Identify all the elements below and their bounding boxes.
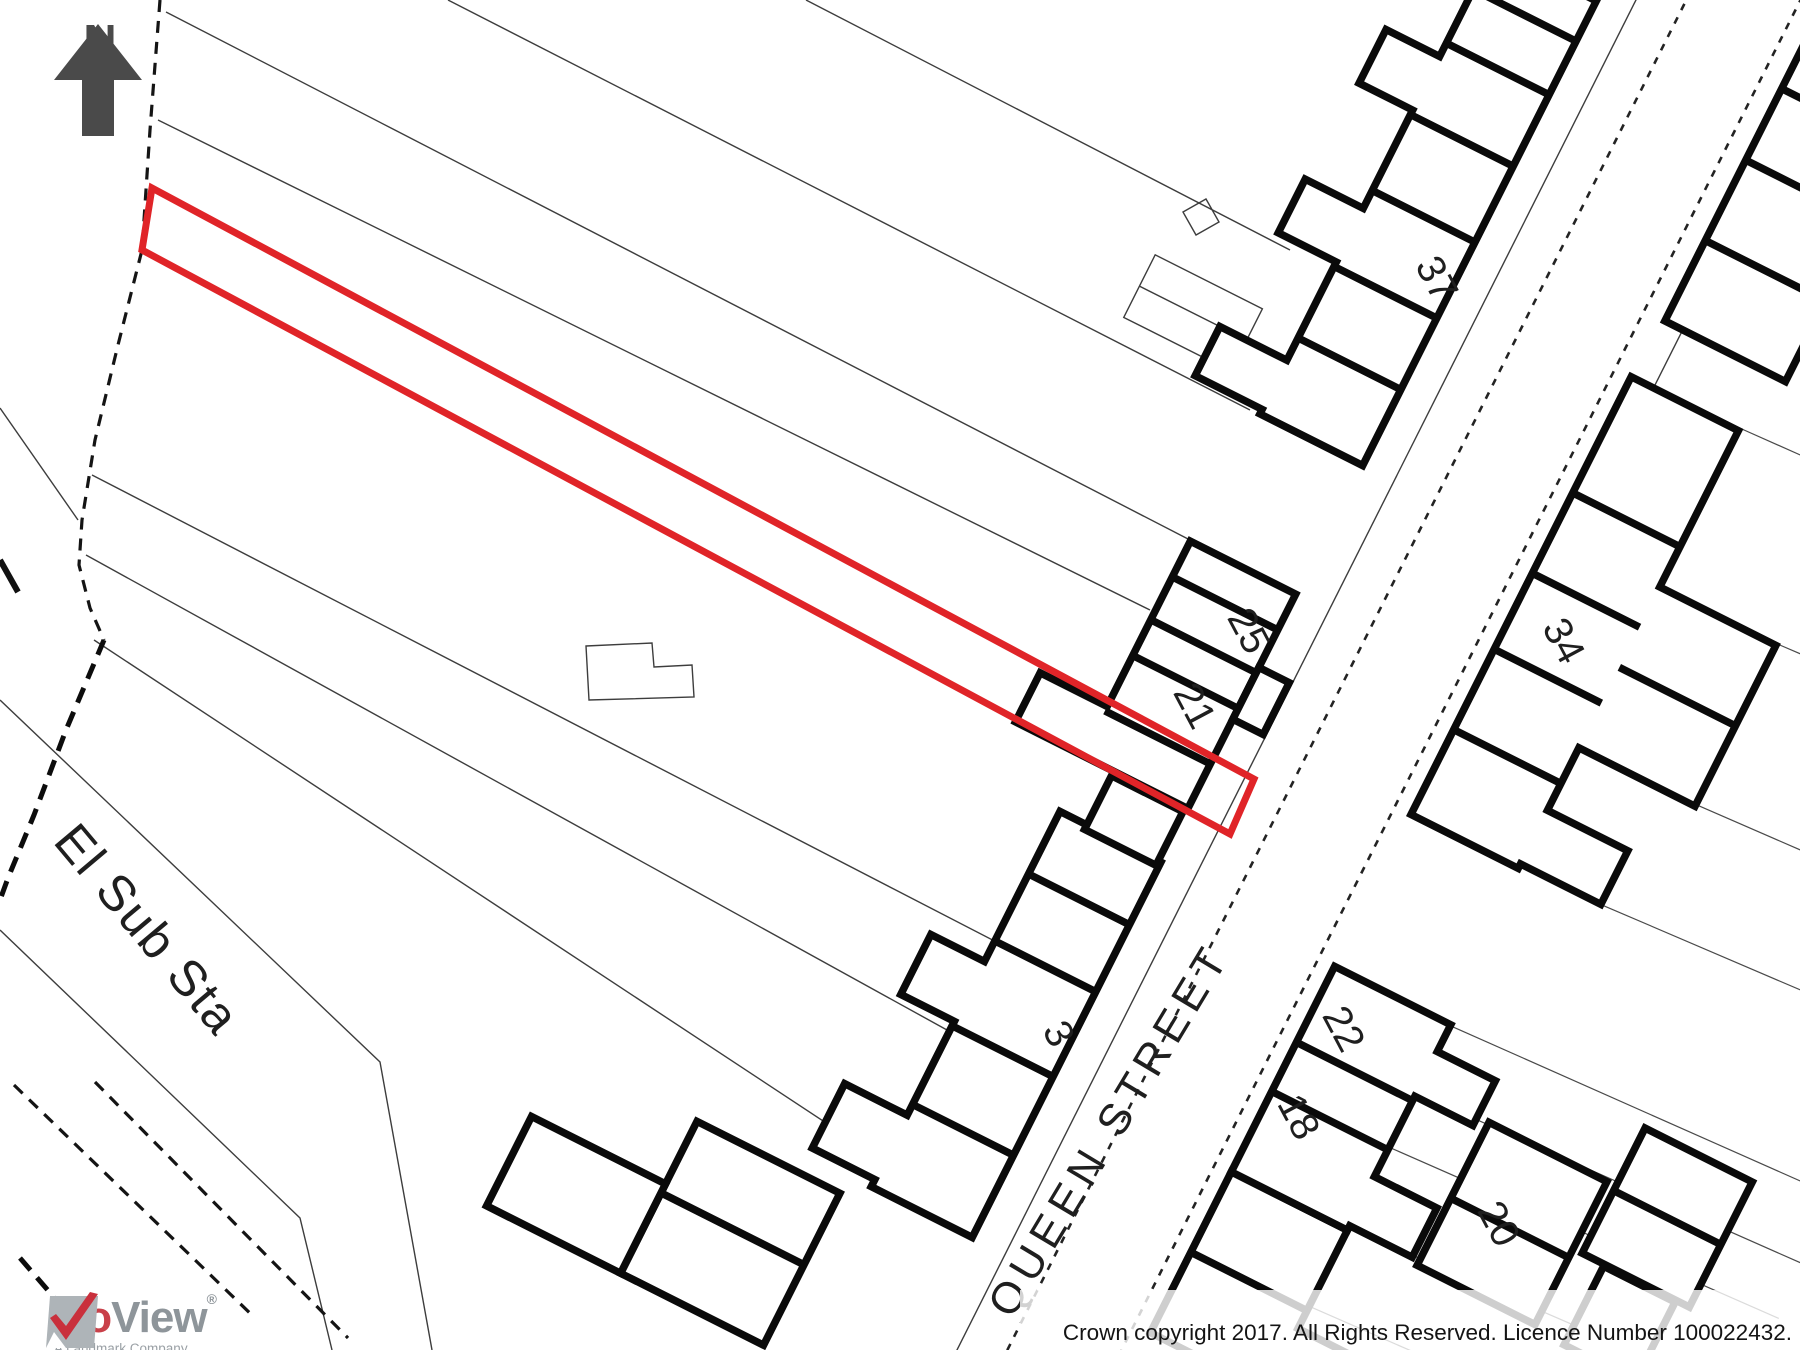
copyright-text: Crown copyright 2017. All Rights Reserve…	[1063, 1320, 1792, 1346]
el-sub-sta-label: El Sub Sta	[44, 813, 252, 1045]
goview-check-icon	[44, 1292, 98, 1348]
goview-logo: GoView® A Landmark Company	[44, 1292, 216, 1350]
outbuilding-outline	[586, 643, 694, 700]
registered-mark: ®	[207, 1291, 216, 1307]
brand-view: View	[111, 1293, 206, 1342]
north-indicator: N	[52, 18, 152, 64]
map-canvas: 3 21 25 37 34 22 18 20 QUEEN STREET El S…	[0, 0, 1800, 1350]
north-arrow-icon	[52, 18, 152, 138]
site-plan-map: 3 21 25 37 34 22 18 20 QUEEN STREET El S…	[0, 0, 1800, 1350]
